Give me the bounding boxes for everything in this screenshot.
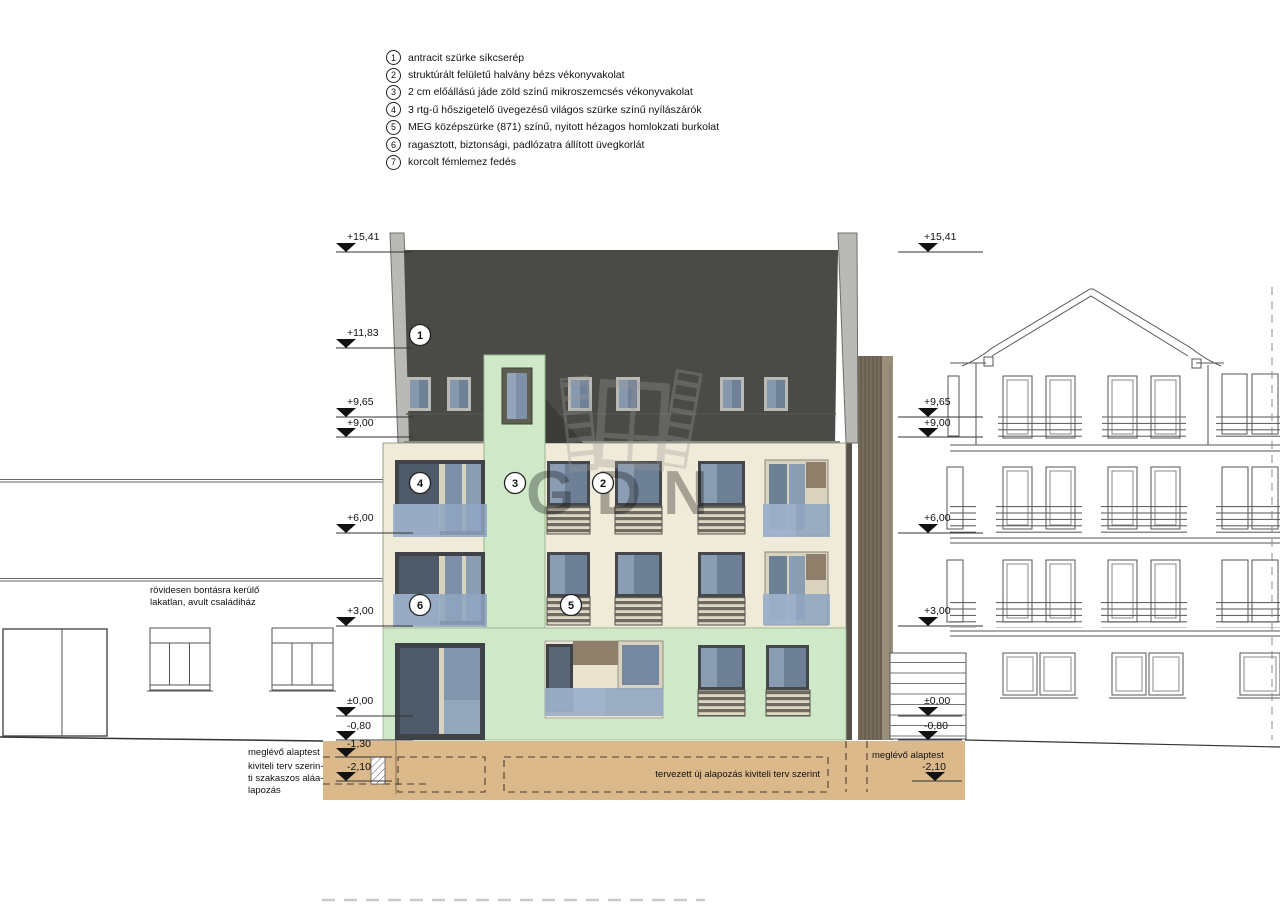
legend-number-circle: 2 xyxy=(386,68,401,83)
svg-text:3: 3 xyxy=(512,478,518,490)
balcony-unit-right xyxy=(763,460,830,537)
legend-item: 7korcolt fémlemez fedés xyxy=(386,153,719,170)
svg-text:-2,10: -2,10 xyxy=(922,761,946,773)
existing-foundation-left-label: meglévő alaptest xyxy=(248,747,320,758)
svg-text:+9,00: +9,00 xyxy=(924,417,951,429)
legend-item-label: struktúrált felületű halvány bézs vékony… xyxy=(408,69,625,81)
legend-item-label: MEG középszürke (871) színű, nyitott héz… xyxy=(408,121,719,133)
callout-circle: 3 xyxy=(505,473,526,494)
svg-text:+11,83: +11,83 xyxy=(347,327,379,339)
balcony-unit-left xyxy=(393,552,487,627)
legend-item-label: antracit szürke síkcserép xyxy=(408,52,524,64)
tower-window xyxy=(502,368,532,424)
recessed-terrace xyxy=(545,641,663,718)
legend: 1antracit szürke síkcserép 2struktúrált … xyxy=(386,49,719,171)
svg-text:+15,41: +15,41 xyxy=(924,231,957,243)
underpinning-label-1: kiviteli terv szerin- xyxy=(248,761,324,772)
dim-marker: +15,41 xyxy=(898,231,983,252)
existing-foundation-right-label: meglévő alaptest xyxy=(872,750,944,761)
callout-circle: 6 xyxy=(410,595,431,616)
svg-text:1: 1 xyxy=(417,330,423,342)
old-house-label-line1: rövidesen bontásra kerülő xyxy=(150,585,259,596)
svg-text:+3,00: +3,00 xyxy=(924,605,951,617)
callout-circle: 4 xyxy=(410,473,431,494)
dim-marker: +9,65 xyxy=(898,396,983,417)
legend-number-circle: 7 xyxy=(386,155,401,170)
svg-text:6: 6 xyxy=(417,600,423,612)
legend-item-label: 3 rtg-ű hőszigetelő üvegezésű világos sz… xyxy=(408,104,702,116)
legend-number-circle: 6 xyxy=(386,137,401,152)
svg-text:5: 5 xyxy=(568,600,574,612)
svg-text:4: 4 xyxy=(417,478,424,490)
ground-windows xyxy=(1000,653,1280,698)
legend-item: 5MEG középszürke (871) színű, nyitott hé… xyxy=(386,119,719,136)
svg-text:±0,00: ±0,00 xyxy=(924,695,950,707)
legend-item: 43 rtg-ű hőszigetelő üvegezésű világos s… xyxy=(386,101,719,118)
svg-text:+9,65: +9,65 xyxy=(347,396,374,408)
legend-number-circle: 4 xyxy=(386,102,401,117)
svg-text:+15,41: +15,41 xyxy=(347,231,380,243)
watermark-text: GDN xyxy=(526,459,730,528)
gable-trim-right xyxy=(838,233,858,443)
old-house-window xyxy=(147,628,213,691)
legend-item-label: korcolt fémlemez fedés xyxy=(408,156,516,168)
svg-text:-1,30: -1,30 xyxy=(347,738,371,750)
callout-circle: 1 xyxy=(410,325,431,346)
svg-text:2: 2 xyxy=(600,478,606,490)
svg-text:-0,80: -0,80 xyxy=(924,720,948,732)
svg-text:+6,00: +6,00 xyxy=(924,512,951,524)
svg-text:±0,00: ±0,00 xyxy=(347,695,373,707)
old-house-label-line2: lakatlan, avult családiház xyxy=(150,597,256,608)
balcony-unit-left xyxy=(393,460,487,537)
legend-number-circle: 5 xyxy=(386,120,401,135)
callout-circle: 2 xyxy=(593,473,614,494)
legend-item-label: 2 cm előállású jáde zöld színű mikroszem… xyxy=(408,86,693,98)
legend-item: 6ragasztott, biztonsági, padlózatra állí… xyxy=(386,136,719,153)
foundation xyxy=(323,741,965,800)
elevation-drawing-page: rövidesen bontásra kerülő lakatlan, avul… xyxy=(0,0,1280,904)
dim-marker: +9,00 xyxy=(898,417,983,437)
svg-text:-2,10: -2,10 xyxy=(347,761,371,773)
old-house xyxy=(0,480,383,742)
legend-number-circle: 1 xyxy=(386,50,401,65)
old-house-window xyxy=(269,628,336,691)
legend-item-label: ragasztott, biztonsági, padlózatra állít… xyxy=(408,139,644,151)
svg-text:+3,00: +3,00 xyxy=(347,605,374,617)
legend-item: 2struktúrált felületű halvány bézs vékon… xyxy=(386,66,719,83)
balcony-unit-right xyxy=(763,552,830,625)
legend-item: 32 cm előállású jáde zöld színű mikrosze… xyxy=(386,84,719,101)
svg-text:-0,80: -0,80 xyxy=(347,720,371,732)
legend-item: 1antracit szürke síkcserép xyxy=(386,49,719,66)
svg-text:+9,00: +9,00 xyxy=(347,417,374,429)
underpinning-label-3: lapozás xyxy=(248,785,281,796)
callout-circle: 5 xyxy=(561,595,582,616)
entrance-door xyxy=(395,643,485,740)
svg-text:+9,65: +9,65 xyxy=(924,396,951,408)
new-foundation-label: tervezett új alapozás kiviteli terv szer… xyxy=(655,769,820,780)
svg-text:+6,00: +6,00 xyxy=(347,512,374,524)
legend-number-circle: 3 xyxy=(386,85,401,100)
underpinning-label-2: ti szakaszos aláa- xyxy=(248,773,324,784)
